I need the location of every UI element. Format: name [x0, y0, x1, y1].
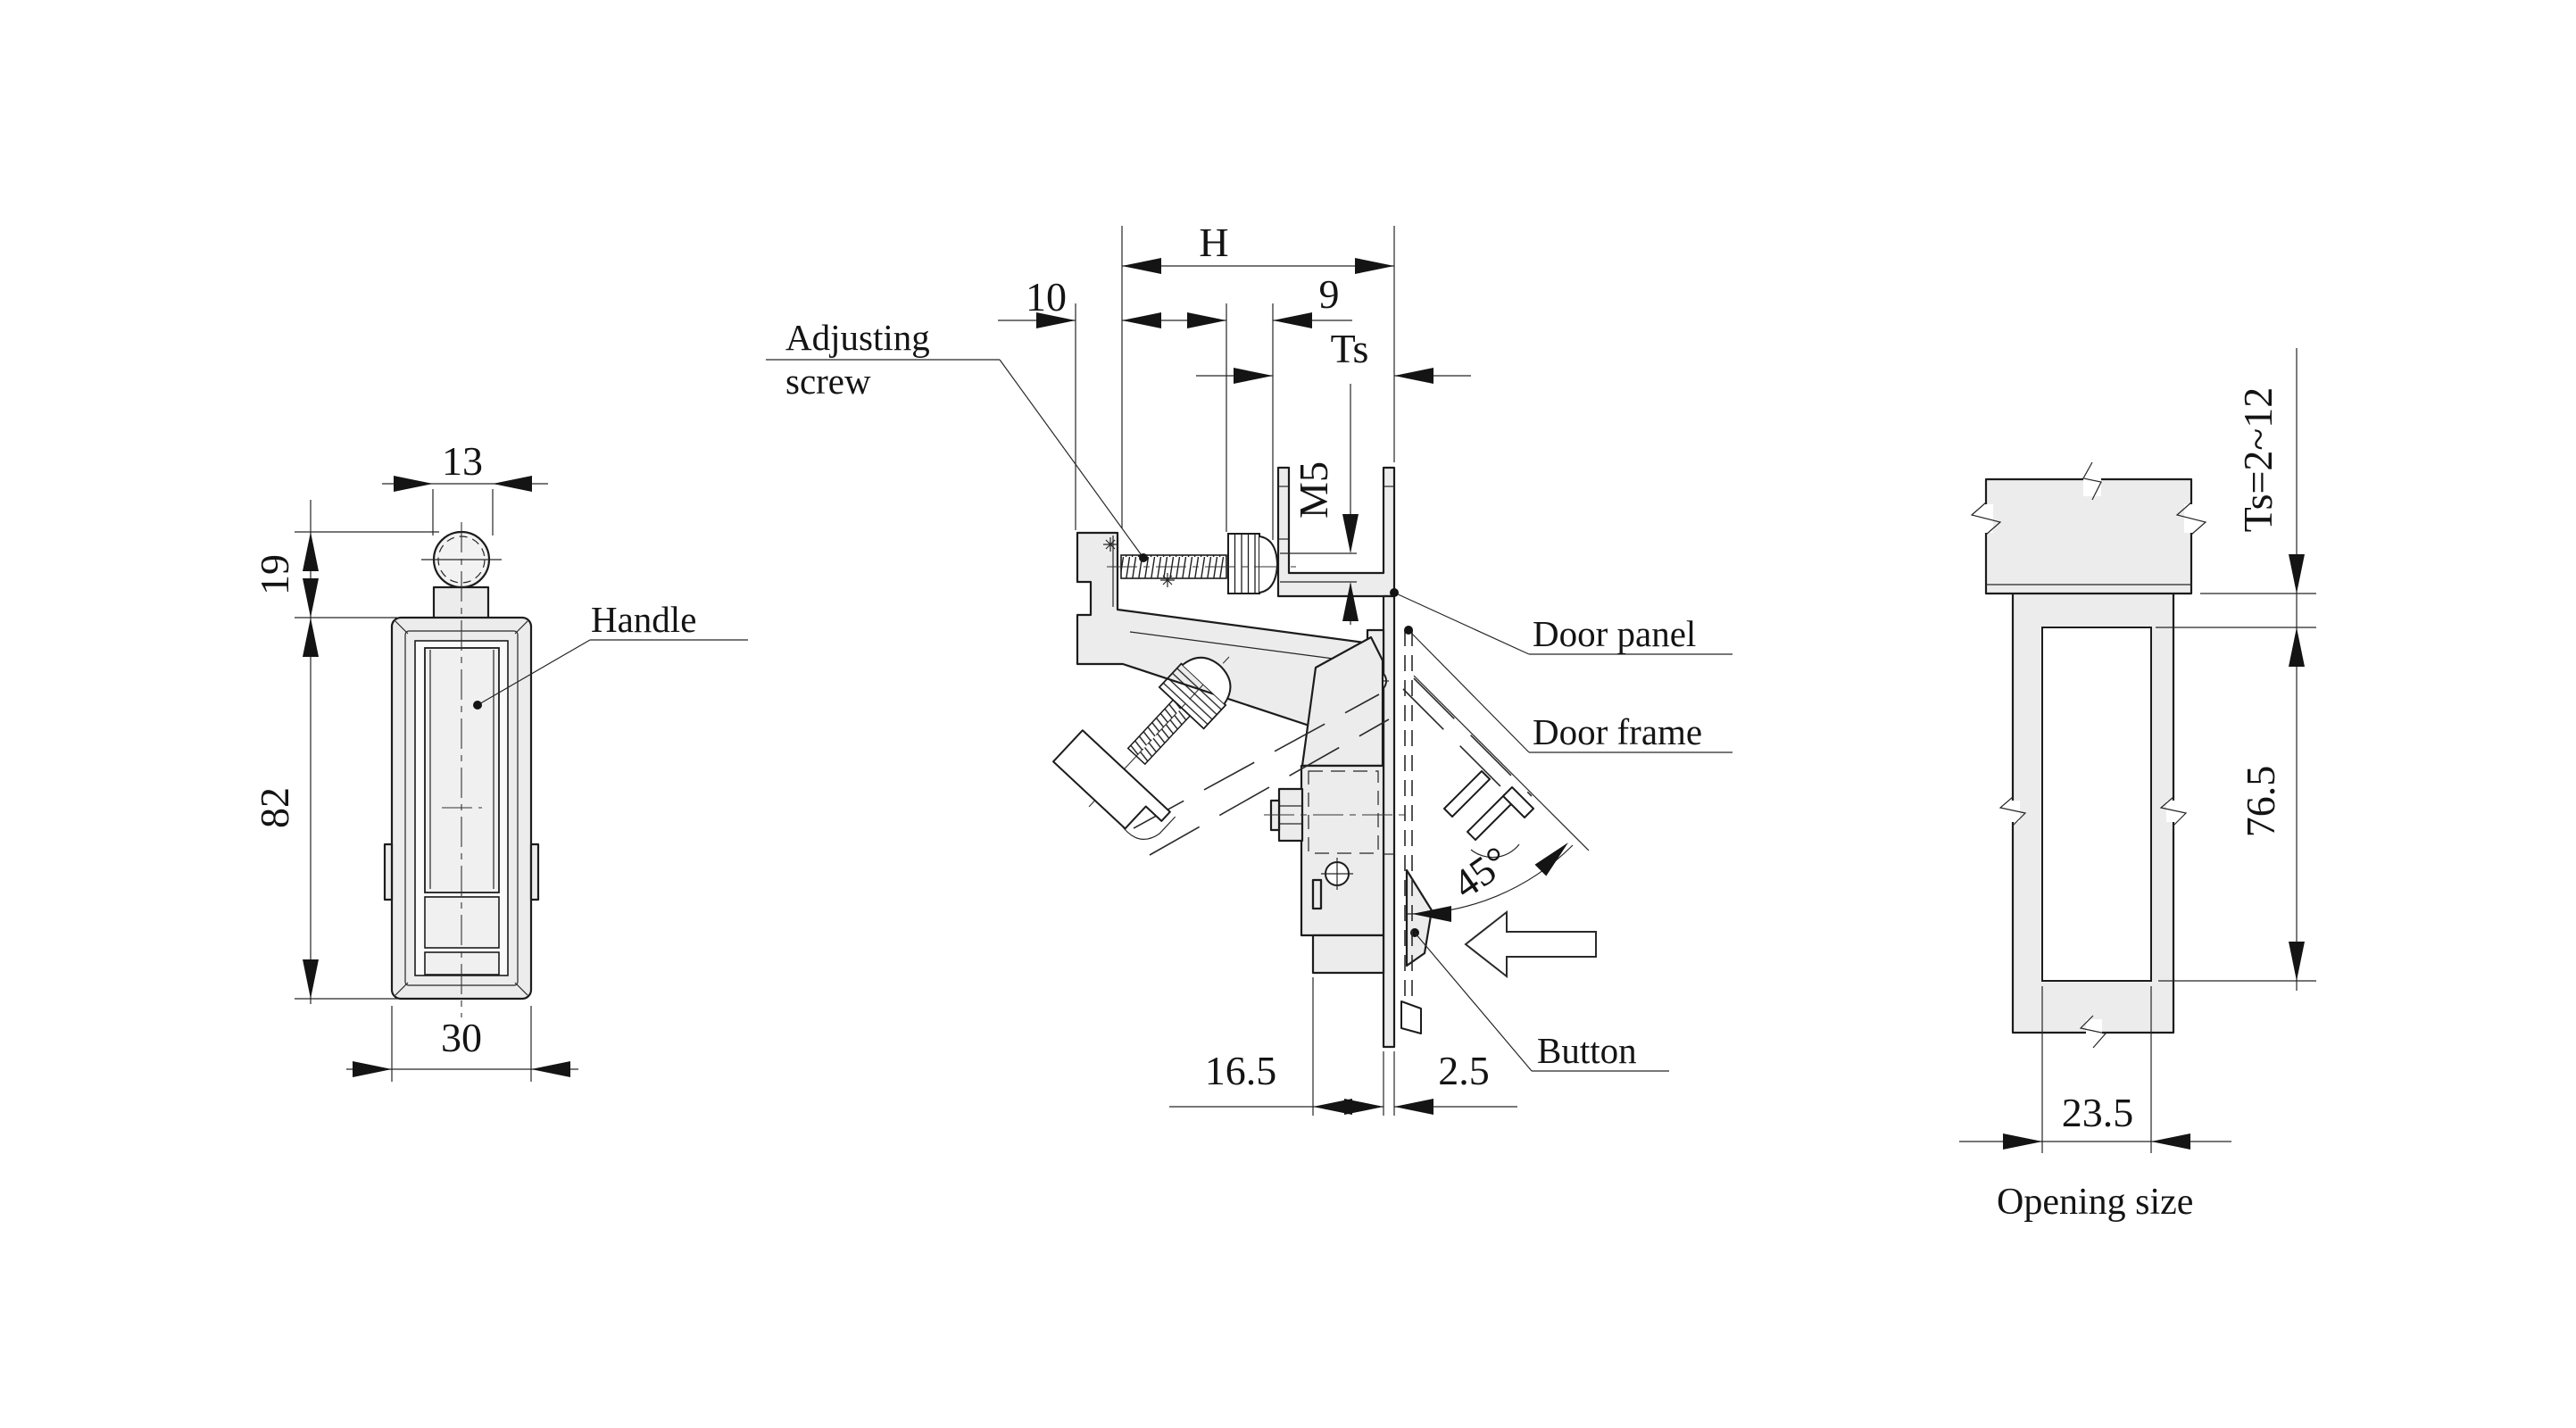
technical-drawing-page: 13 19 82 30 Handle — [0, 0, 2576, 1428]
dim-13: 13 — [442, 438, 483, 484]
front-view: 13 19 82 30 Handle — [252, 438, 748, 1082]
door-frame-label: Door frame — [1533, 711, 1702, 752]
latch-housing — [1301, 766, 1384, 935]
dim-H: H — [1199, 220, 1228, 265]
adjusting-screw-label-2: screw — [785, 361, 871, 402]
button-wedge — [1407, 870, 1432, 966]
side-view: 45° H 10 9 Ts M5 — [766, 220, 1733, 1116]
dim-16-5: 16.5 — [1205, 1048, 1277, 1093]
dim-M5: M5 — [1291, 461, 1336, 519]
dim-ts-range: Ts=2~12 — [2235, 387, 2281, 533]
frame-section — [1986, 479, 2191, 594]
dim-9: 9 — [1319, 271, 1340, 317]
door-panel-label: Door panel — [1533, 613, 1696, 654]
button-label: Button — [1537, 1030, 1637, 1071]
dim-23-5: 23.5 — [2062, 1090, 2134, 1135]
latch-drawing: 13 19 82 30 Handle — [0, 0, 2576, 1428]
adjusting-screw-knob — [1228, 534, 1259, 594]
opening — [2042, 627, 2151, 981]
dim-82: 82 — [252, 787, 297, 828]
dim-45deg: 45° — [1444, 837, 1517, 908]
dim-10: 10 — [1026, 274, 1067, 320]
press-direction-arrow — [1466, 912, 1596, 976]
handle-label: Handle — [591, 599, 696, 640]
opening-size-caption: Opening size — [1997, 1182, 2193, 1223]
knob-dome — [1259, 536, 1277, 593]
dim-76-5: 76.5 — [2238, 766, 2283, 838]
dim-30: 30 — [441, 1015, 482, 1060]
dim-Ts: Ts — [1331, 326, 1369, 371]
opening-view: Ts=2~12 76.5 23.5 Opening size — [1959, 348, 2316, 1223]
adjusting-screw-label-1: Adjusting — [785, 317, 930, 358]
dim-2-5: 2.5 — [1438, 1048, 1490, 1093]
dim-19: 19 — [252, 554, 297, 595]
door-panel — [1384, 596, 1394, 1047]
